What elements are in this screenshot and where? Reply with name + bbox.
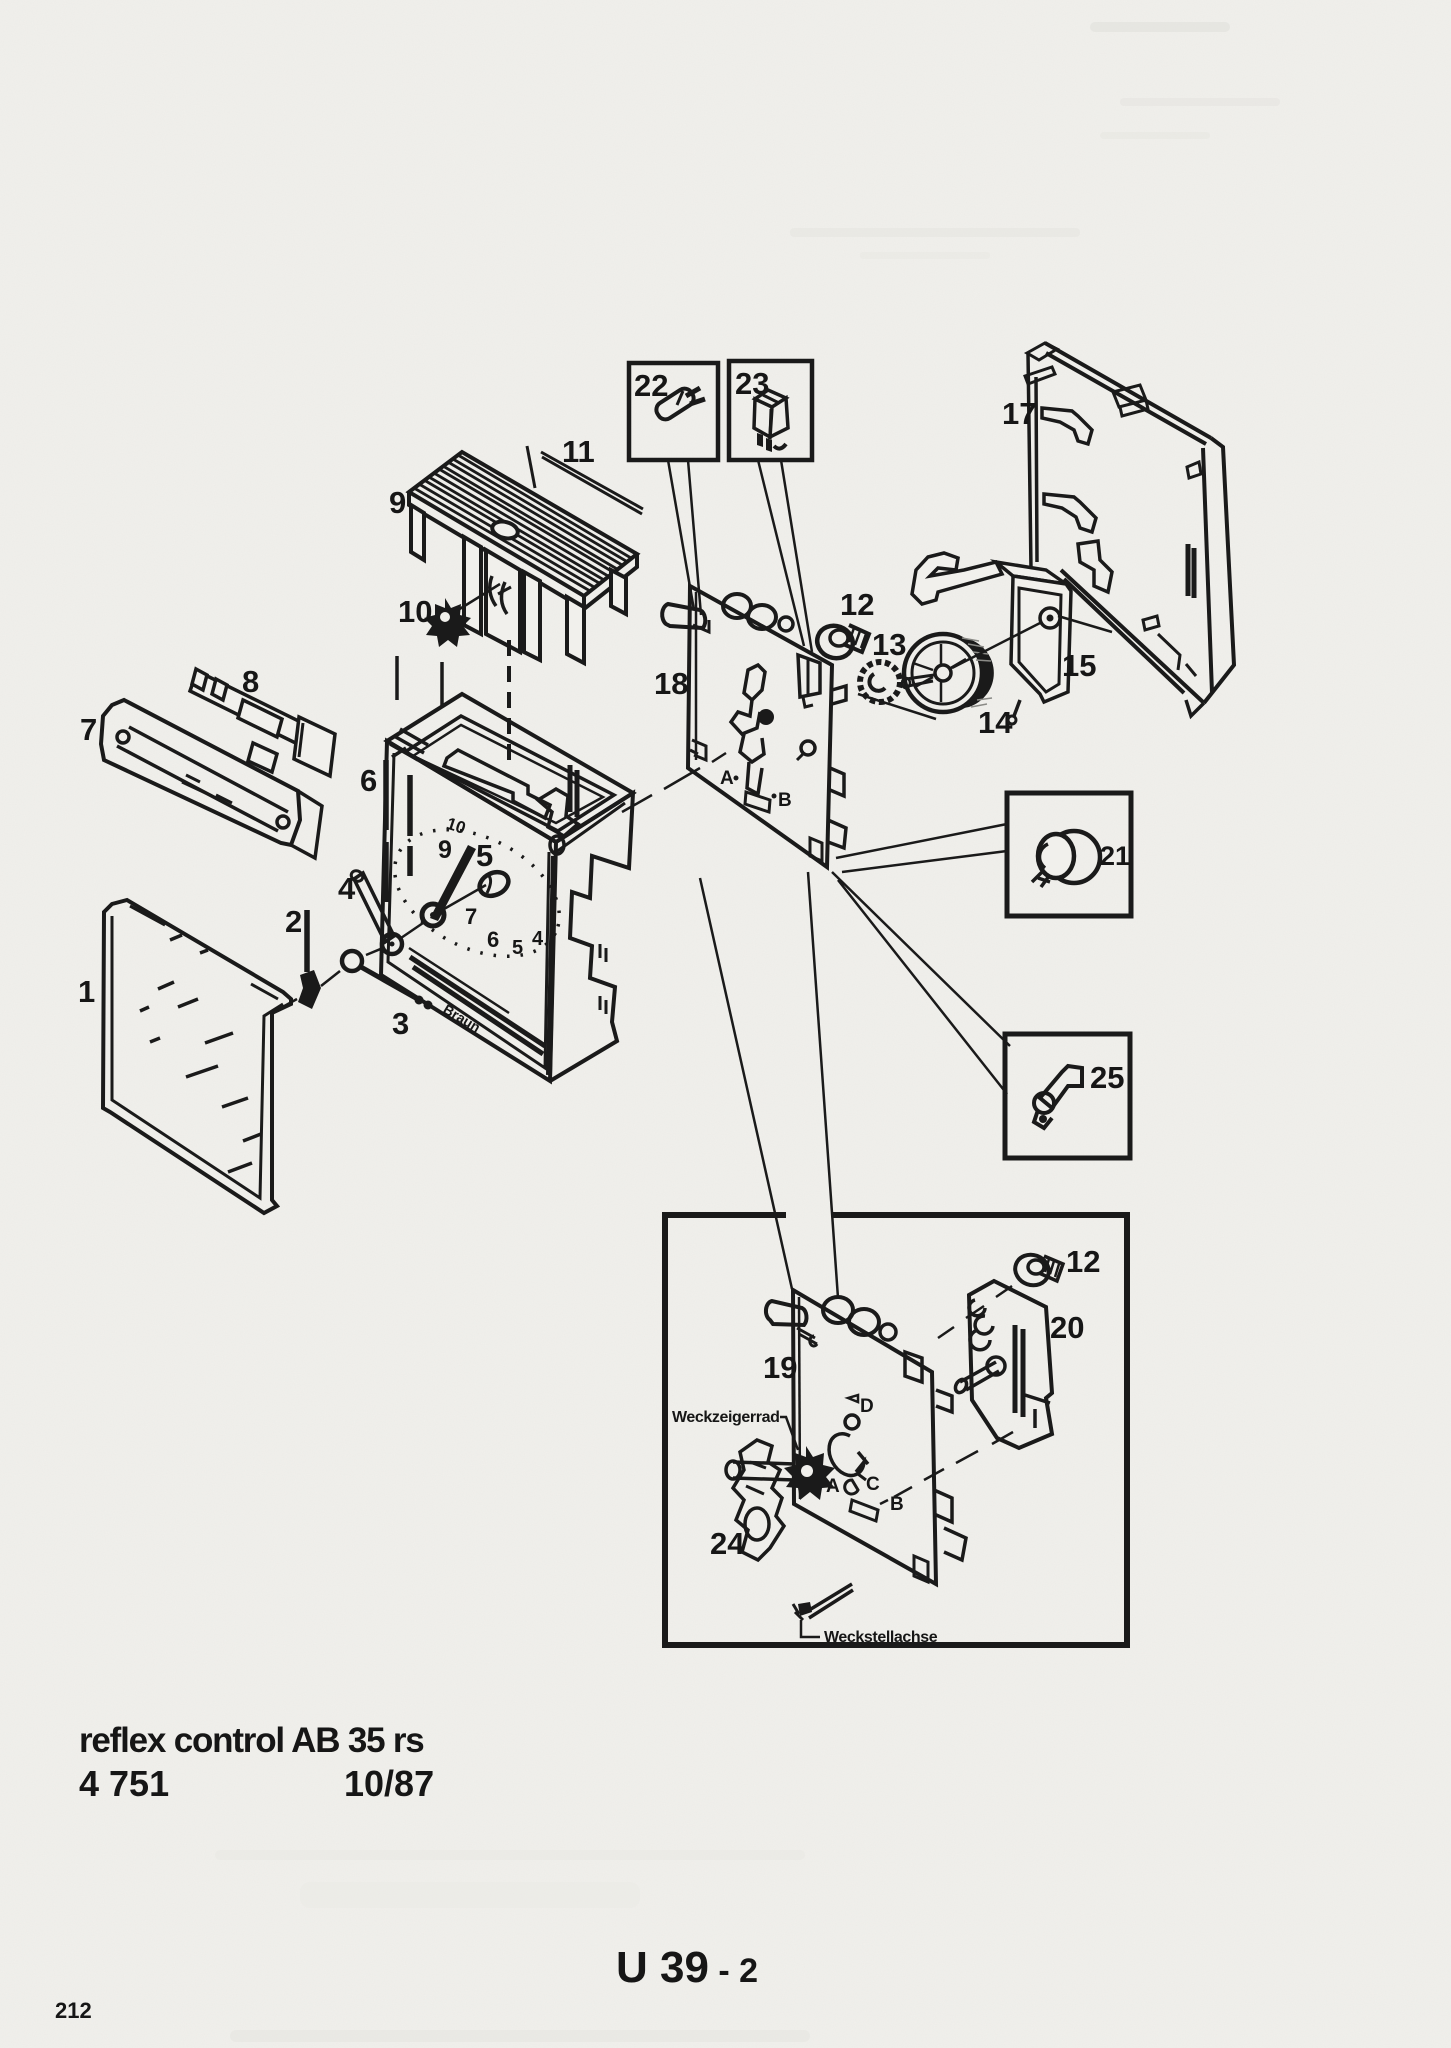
svg-text:1: 1 [78, 974, 95, 1009]
svg-text:212: 212 [55, 1998, 92, 2023]
svg-text:12: 12 [1066, 1244, 1100, 1279]
svg-text:5: 5 [476, 838, 493, 873]
svg-text:6: 6 [360, 763, 377, 798]
svg-text:24: 24 [710, 1526, 745, 1561]
svg-text:B: B [890, 1494, 904, 1515]
svg-text:8: 8 [242, 664, 259, 699]
svg-text:5: 5 [512, 937, 523, 959]
svg-text:C: C [866, 1474, 880, 1495]
svg-text:9: 9 [389, 485, 406, 520]
svg-text:9: 9 [438, 836, 452, 864]
svg-text:Weckzeigerrad: Weckzeigerrad [672, 1409, 779, 1426]
svg-text:Weckstellachse: Weckstellachse [824, 1629, 938, 1646]
svg-text:20: 20 [1050, 1310, 1084, 1345]
svg-text:17: 17 [1002, 396, 1036, 431]
svg-text:7: 7 [465, 904, 477, 929]
svg-text:2: 2 [285, 904, 302, 939]
svg-text:A: A [720, 768, 734, 789]
svg-text:11: 11 [562, 434, 595, 469]
svg-text:15: 15 [1062, 648, 1096, 683]
svg-text:22: 22 [634, 368, 668, 403]
svg-text:4 751: 4 751 [79, 1763, 169, 1804]
svg-text:19: 19 [763, 1350, 797, 1385]
svg-text:B: B [778, 790, 792, 811]
svg-text:7: 7 [80, 712, 97, 747]
svg-text:12: 12 [840, 587, 874, 622]
svg-text:21: 21 [1100, 841, 1130, 871]
svg-text:13: 13 [872, 627, 906, 662]
svg-text:25: 25 [1090, 1060, 1124, 1095]
svg-text:10/87: 10/87 [344, 1763, 434, 1804]
svg-text:4: 4 [338, 871, 356, 906]
svg-text:reflex control AB 35 rs: reflex control AB 35 rs [79, 1721, 424, 1760]
svg-text:10: 10 [398, 594, 432, 629]
svg-text:D: D [860, 1396, 874, 1417]
svg-text:4: 4 [532, 928, 544, 950]
svg-text:3: 3 [392, 1006, 409, 1041]
svg-text:6: 6 [487, 927, 499, 952]
svg-text:18: 18 [654, 666, 688, 701]
